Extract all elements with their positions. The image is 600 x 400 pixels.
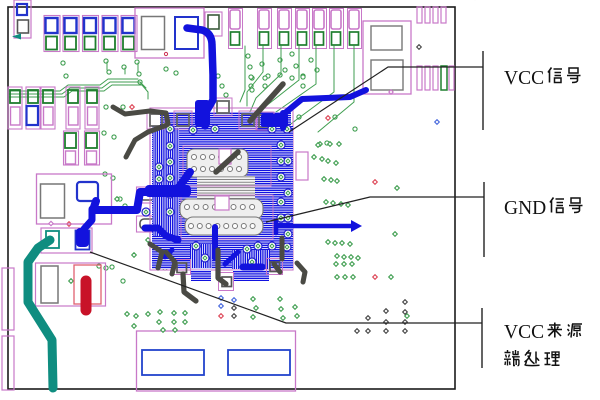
svg-text:GND: GND bbox=[504, 198, 546, 219]
svg-text:VCC: VCC bbox=[504, 322, 544, 343]
svg-text:VCC: VCC bbox=[504, 68, 544, 89]
